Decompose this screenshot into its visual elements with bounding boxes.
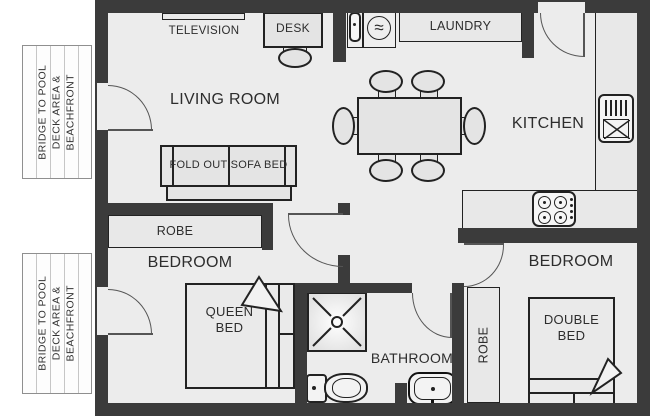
bridge-line-3: BEACHFRONT [64, 64, 78, 159]
sofa-bed-label: FOLD OUT SOFA BED [160, 155, 297, 175]
door-leaf [464, 243, 504, 245]
sink-bowl [603, 119, 629, 138]
robe-label-2: ROBE [467, 320, 500, 370]
interior-wall-toilet-stub [395, 383, 407, 403]
room-label-bedroom-1: BEDROOM [140, 251, 240, 275]
door-leaf [583, 13, 585, 57]
television [162, 13, 245, 20]
double-bed-label: DOUBLE BED [533, 308, 610, 348]
dining-chair-seat [411, 70, 445, 93]
bridge-walkway-label-top: BRIDGE TO POOL DECK AREA & BEACHFRONT [22, 45, 92, 179]
television-label: TELEVISION [160, 23, 248, 39]
bridge-line-2: DECK AREA & [50, 276, 64, 371]
shower-icon [307, 292, 367, 352]
outer-wall-bottom [95, 403, 650, 416]
dining-chair-seat [332, 107, 355, 145]
bridge-line-1: BRIDGE TO POOL [36, 64, 50, 159]
laundry-label: LAUNDRY [399, 13, 522, 39]
door-gap-bedroom1-ext [97, 287, 108, 335]
kitchen-sink-icon [598, 94, 634, 143]
bridge-plank [78, 46, 79, 178]
interior-wall-living-divider [108, 203, 273, 215]
room-label-bathroom: BATHROOM [368, 348, 456, 368]
bridge-line-3: BEACHFRONT [64, 276, 78, 371]
dining-chair-seat [463, 107, 486, 145]
floor-plan: BRIDGE TO POOL DECK AREA & BEACHFRONT BR… [0, 0, 650, 420]
blanket-fold-double [585, 352, 630, 400]
door-leaf [108, 129, 153, 131]
interior-wall-bathroom-right [452, 283, 464, 403]
bridge-walkway-text: BRIDGE TO POOL DECK AREA & BEACHFRONT [36, 64, 79, 159]
bridge-line-1: BRIDGE TO POOL [36, 276, 50, 371]
cooktop-icon [532, 191, 576, 227]
door-leaf [450, 293, 452, 338]
outer-wall-right [637, 0, 650, 416]
door-gap-entry [538, 2, 585, 13]
bridge-plank [78, 254, 79, 393]
interior-wall-bathroom-top [302, 283, 412, 293]
room-label-living: LIVING ROOM [155, 88, 295, 112]
laundry-tub-drain [353, 23, 356, 26]
bridge-line-2: DECK AREA & [50, 64, 64, 159]
interior-wall-divider-stub [262, 215, 273, 250]
door-leaf [288, 213, 343, 215]
dining-table [357, 97, 462, 155]
blanket-fold-queen [235, 270, 290, 318]
door-gap-living [97, 83, 108, 130]
room-label-kitchen: KITCHEN [503, 112, 593, 136]
dining-chair-seat [411, 159, 445, 182]
washing-machine-icon: ≈ [367, 16, 391, 40]
interior-wall-desk-stub [333, 0, 346, 62]
outer-wall-left [95, 0, 108, 416]
bridge-walkway-label-bottom: BRIDGE TO POOL DECK AREA & BEACHFRONT [22, 253, 92, 394]
desk-chair-seat [278, 48, 312, 68]
sofa-bed-seat [166, 185, 292, 201]
interior-wall-kitchen-bottom [458, 228, 637, 243]
room-label-bedroom-2: BEDROOM [521, 250, 621, 274]
bridge-walkway-text: BRIDGE TO POOL DECK AREA & BEACHFRONT [36, 276, 79, 371]
dining-chair-seat [369, 159, 403, 182]
robe-label-1: ROBE [130, 219, 220, 243]
desk-label: DESK [263, 18, 323, 38]
toilet-icon [306, 373, 368, 404]
interior-wall-laundry-stub [522, 0, 534, 58]
laundry-tub-icon [349, 12, 361, 42]
dining-chair-seat [369, 70, 403, 93]
interior-wall-bathroom-left [295, 283, 307, 403]
door-leaf [108, 333, 153, 335]
